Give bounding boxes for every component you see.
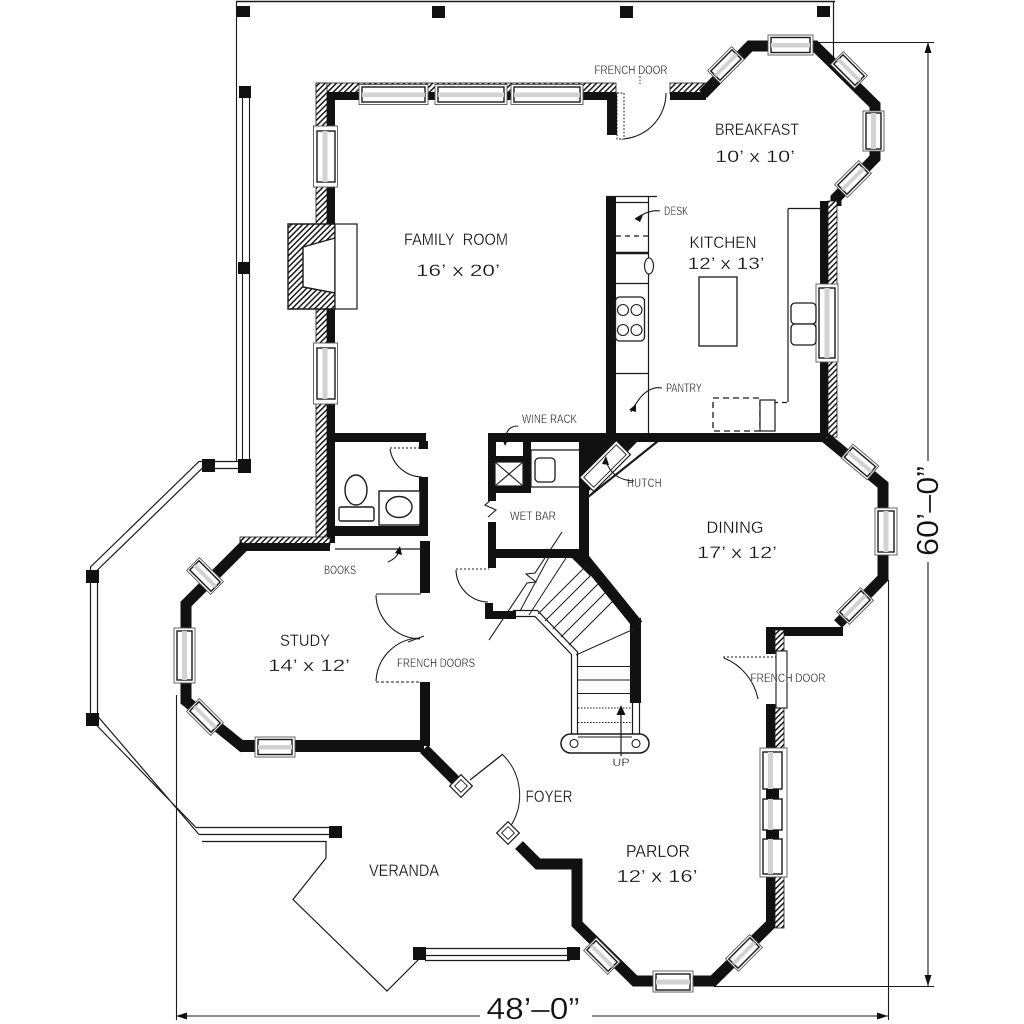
svg-text:14’ x 12’: 14’ x 12’ — [268, 656, 350, 675]
svg-text:KITCHEN: KITCHEN — [690, 233, 757, 252]
svg-text:60’–0”: 60’–0” — [910, 466, 945, 556]
svg-text:PANTRY: PANTRY — [666, 383, 702, 395]
svg-text:BREAKFAST: BREAKFAST — [715, 120, 799, 139]
svg-text:WINE RACK: WINE RACK — [522, 414, 577, 426]
svg-text:VERANDA: VERANDA — [369, 861, 440, 880]
svg-text:WET BAR: WET BAR — [510, 511, 556, 523]
svg-text:12’ x 13’: 12’ x 13’ — [688, 254, 765, 273]
svg-text:FAMILY ROOM: FAMILY ROOM — [404, 230, 508, 249]
svg-text:FRENCH DOORS: FRENCH DOORS — [397, 658, 475, 670]
svg-text:HUTCH: HUTCH — [627, 478, 662, 490]
svg-text:STUDY: STUDY — [280, 631, 330, 650]
svg-text:UP: UP — [613, 757, 630, 769]
svg-text:BOOKS: BOOKS — [324, 565, 356, 577]
svg-text:16’ x 20’: 16’ x 20’ — [416, 261, 500, 280]
svg-text:FRENCH DOOR: FRENCH DOOR — [595, 65, 668, 77]
svg-text:FRENCH DOOR: FRENCH DOOR — [751, 673, 826, 685]
svg-text:48’–0”: 48’–0” — [487, 991, 580, 1024]
svg-text:10’ x 10’: 10’ x 10’ — [715, 147, 795, 166]
svg-text:17’ x 12’: 17’ x 12’ — [697, 543, 777, 562]
svg-text:FOYER: FOYER — [526, 787, 573, 806]
svg-text:12’ x 16’: 12’ x 16’ — [617, 866, 698, 886]
svg-text:DESK: DESK — [664, 206, 688, 218]
svg-text:DINING: DINING — [707, 518, 764, 537]
svg-text:PARLOR: PARLOR — [626, 841, 690, 861]
